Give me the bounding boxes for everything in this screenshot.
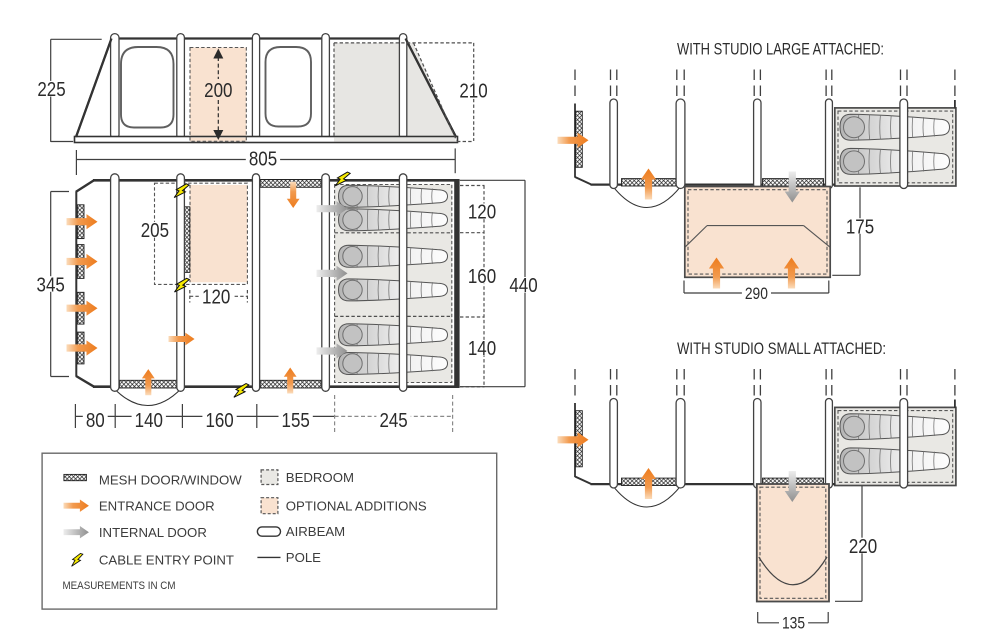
svg-text:175: 175 (846, 215, 874, 238)
svg-text:80: 80 (86, 409, 105, 432)
svg-text:BEDROOM: BEDROOM (286, 470, 354, 485)
svg-text:140: 140 (468, 337, 496, 360)
svg-text:200: 200 (204, 79, 232, 102)
svg-text:805: 805 (249, 147, 277, 170)
svg-text:140: 140 (135, 409, 163, 432)
svg-text:290: 290 (745, 285, 768, 303)
svg-text:AIRBEAM: AIRBEAM (286, 524, 345, 539)
svg-text:MESH DOOR/WINDOW: MESH DOOR/WINDOW (99, 473, 242, 488)
svg-text:INTERNAL DOOR: INTERNAL DOOR (99, 525, 207, 540)
svg-text:160: 160 (468, 265, 496, 288)
svg-text:ENTRANCE DOOR: ENTRANCE DOOR (99, 498, 215, 513)
svg-text:440: 440 (509, 274, 537, 297)
svg-text:WITH STUDIO SMALL ATTACHED:: WITH STUDIO SMALL ATTACHED: (677, 339, 886, 358)
svg-text:225: 225 (37, 78, 65, 101)
svg-text:220: 220 (849, 535, 877, 558)
svg-text:POLE: POLE (286, 550, 321, 565)
svg-text:210: 210 (459, 80, 487, 103)
svg-text:345: 345 (37, 273, 65, 296)
svg-text:160: 160 (205, 409, 233, 432)
svg-text:CABLE ENTRY POINT: CABLE ENTRY POINT (99, 553, 234, 568)
svg-text:155: 155 (282, 409, 310, 432)
svg-text:245: 245 (379, 409, 407, 432)
svg-text:120: 120 (468, 201, 496, 224)
svg-text:120: 120 (202, 286, 230, 309)
svg-text:MEASUREMENTS IN CM: MEASUREMENTS IN CM (63, 580, 176, 592)
svg-text:205: 205 (141, 219, 169, 242)
svg-text:135: 135 (782, 615, 805, 633)
svg-text:OPTIONAL ADDITIONS: OPTIONAL ADDITIONS (286, 498, 427, 513)
svg-text:WITH STUDIO LARGE ATTACHED:: WITH STUDIO LARGE ATTACHED: (677, 40, 884, 59)
